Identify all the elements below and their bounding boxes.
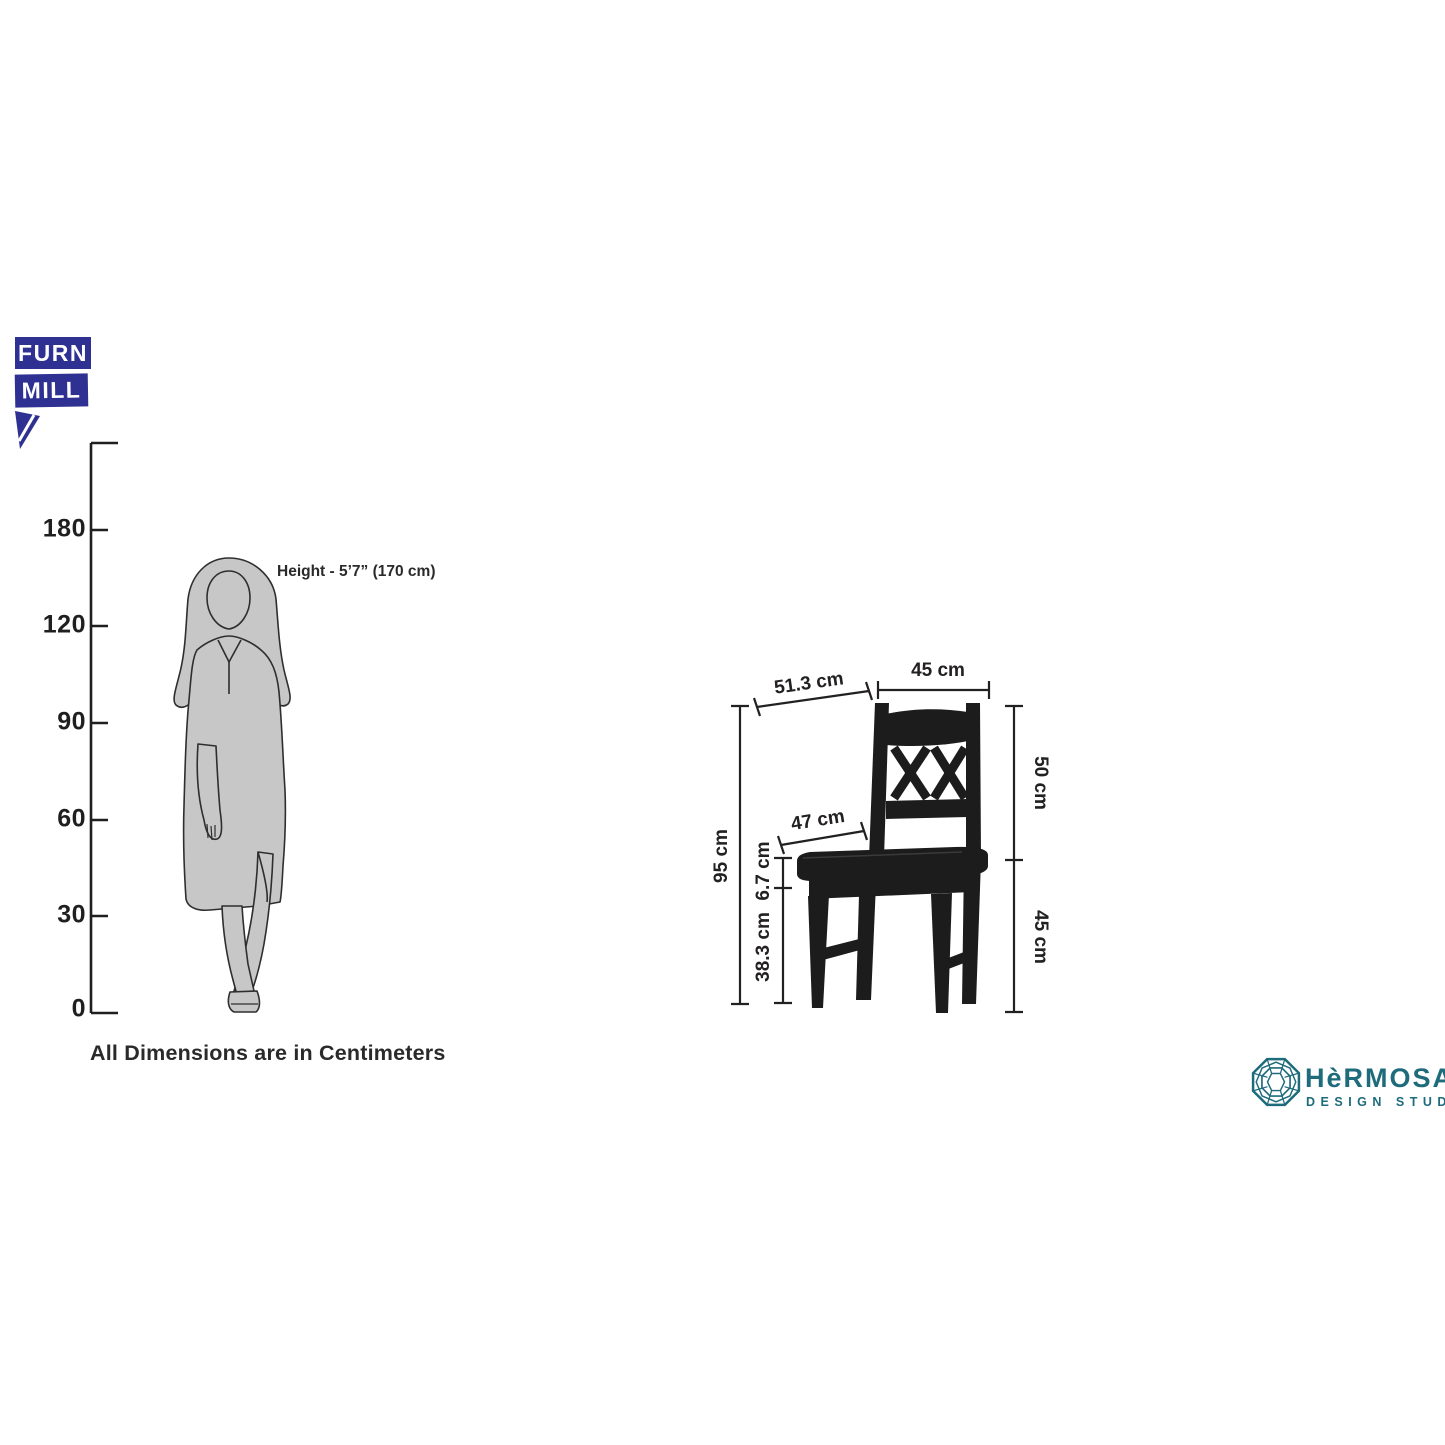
- person-height-label: Height - 5’7” (170 cm): [277, 563, 436, 581]
- dim-top-width: 45 cm: [911, 660, 965, 682]
- ruler-tick-0: 0: [16, 994, 86, 1023]
- hermosa-name: HèRMOSA: [1305, 1063, 1445, 1094]
- dim-overall-height: 95 cm: [711, 829, 733, 883]
- ruler-tick-60: 60: [16, 804, 86, 833]
- person-silhouette: [174, 558, 290, 1012]
- ruler-tick-90: 90: [16, 707, 86, 736]
- dim-seat-to-floor: 45 cm: [1029, 910, 1051, 964]
- dimensions-unit-note: All Dimensions are in Centimeters: [90, 1041, 445, 1066]
- dim-seat-thickness: 6.7 cm: [753, 841, 775, 900]
- dim-back-height: 50 cm: [1029, 756, 1051, 810]
- ruler-tick-30: 30: [16, 900, 86, 929]
- chair-illustration: [797, 703, 988, 1013]
- diagram-graphics: [0, 0, 1445, 1445]
- dim-under-seat: 38.3 cm: [753, 912, 775, 982]
- height-ruler: [91, 443, 118, 1013]
- ruler-tick-180: 180: [16, 514, 86, 543]
- hermosa-tagline: DESIGN STUDIO: [1306, 1095, 1445, 1109]
- ruler-tick-120: 120: [16, 610, 86, 639]
- hermosa-emblem-icon: [1251, 1057, 1301, 1107]
- product-dimension-sheet: FURN MILL: [0, 0, 1445, 1445]
